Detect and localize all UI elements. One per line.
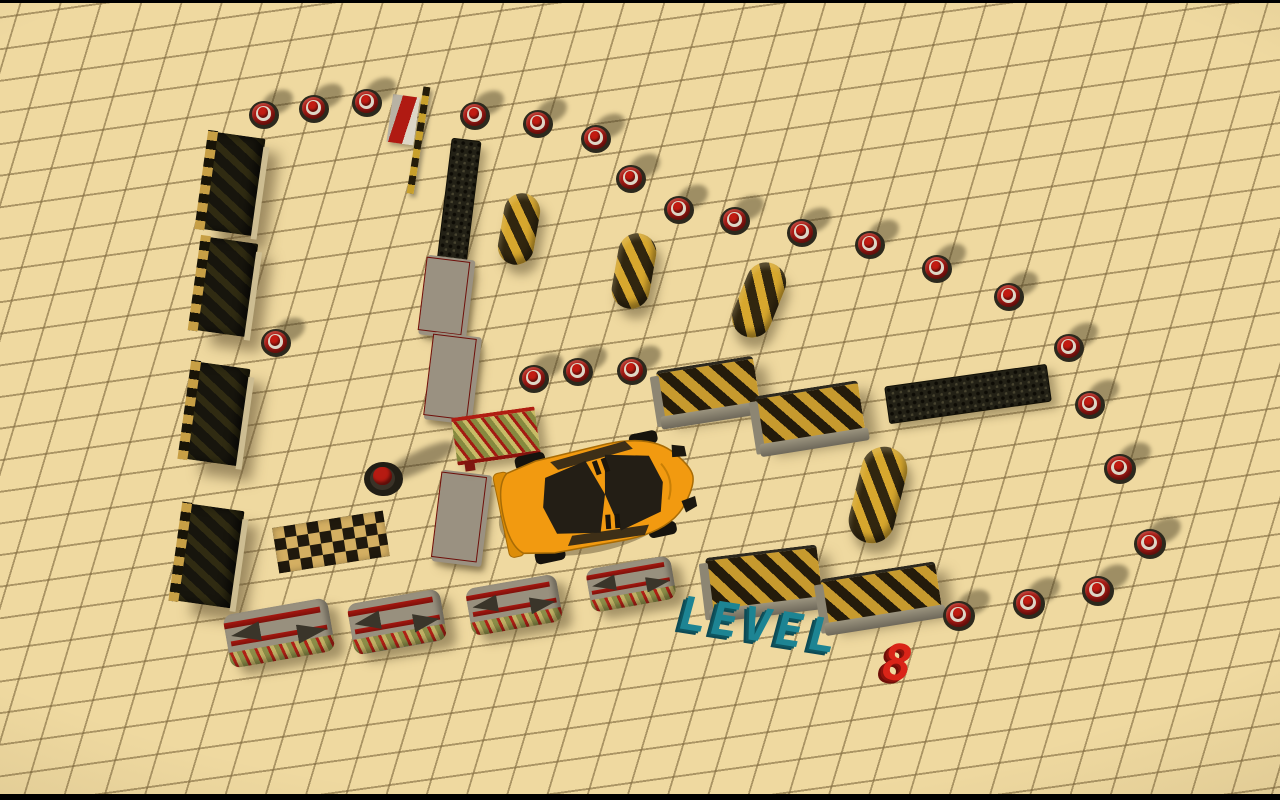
letterbox-top (0, 0, 1280, 3)
mesh-strip (436, 138, 481, 267)
spike-barrier (585, 555, 677, 613)
traffic-cone (992, 275, 1030, 313)
traffic-cone (247, 93, 285, 131)
hazard-capsule (844, 442, 912, 548)
traffic-cone (615, 349, 653, 387)
striped-block (705, 544, 823, 612)
traffic-cone (350, 81, 388, 119)
traffic-cone (259, 321, 297, 359)
traffic-cone (1132, 521, 1172, 561)
hazard-capsule (609, 230, 660, 311)
cone-tip (373, 467, 391, 485)
traffic-cone (579, 117, 617, 155)
wall-barrier (176, 504, 244, 609)
traffic-cone (1080, 568, 1120, 608)
traffic-cone (458, 94, 496, 132)
game-viewport[interactable]: LEVEL 8 (0, 0, 1280, 800)
boom-gate (387, 87, 437, 193)
traffic-cone (662, 188, 700, 226)
spike-barrier (465, 573, 564, 636)
traffic-cone (521, 102, 559, 140)
red-stripe-barrier (432, 473, 486, 562)
wall-barrier (185, 362, 250, 466)
dark-cone (363, 456, 409, 498)
traffic-cone (561, 350, 599, 388)
traffic-cone (1052, 326, 1090, 364)
traffic-cone (614, 157, 652, 195)
traffic-cone (517, 357, 555, 395)
traffic-cone (785, 211, 823, 249)
spike-barrier (222, 597, 336, 669)
traffic-cone (718, 199, 756, 237)
spike-barrier (346, 588, 448, 656)
traffic-cone (1073, 383, 1111, 421)
traffic-cone (1011, 581, 1051, 621)
red-stripe-barrier (424, 335, 475, 420)
traffic-cone (1102, 446, 1142, 486)
traffic-cone (853, 223, 891, 261)
mesh-strip (884, 364, 1052, 424)
striped-block (820, 561, 942, 626)
wall-barrier (196, 237, 259, 337)
striped-block (755, 380, 866, 447)
striped-block (656, 356, 760, 420)
traffic-cone (941, 593, 981, 633)
red-stripe-barrier (419, 258, 469, 335)
checkered-strip (272, 511, 390, 574)
traffic-cone (297, 87, 335, 125)
hazard-capsule (495, 190, 543, 267)
traffic-cone (920, 247, 958, 285)
hazard-capsule (726, 256, 792, 343)
wall-barrier (202, 132, 265, 236)
letterbox-bottom (0, 794, 1280, 800)
scene-layer (0, 0, 1280, 800)
